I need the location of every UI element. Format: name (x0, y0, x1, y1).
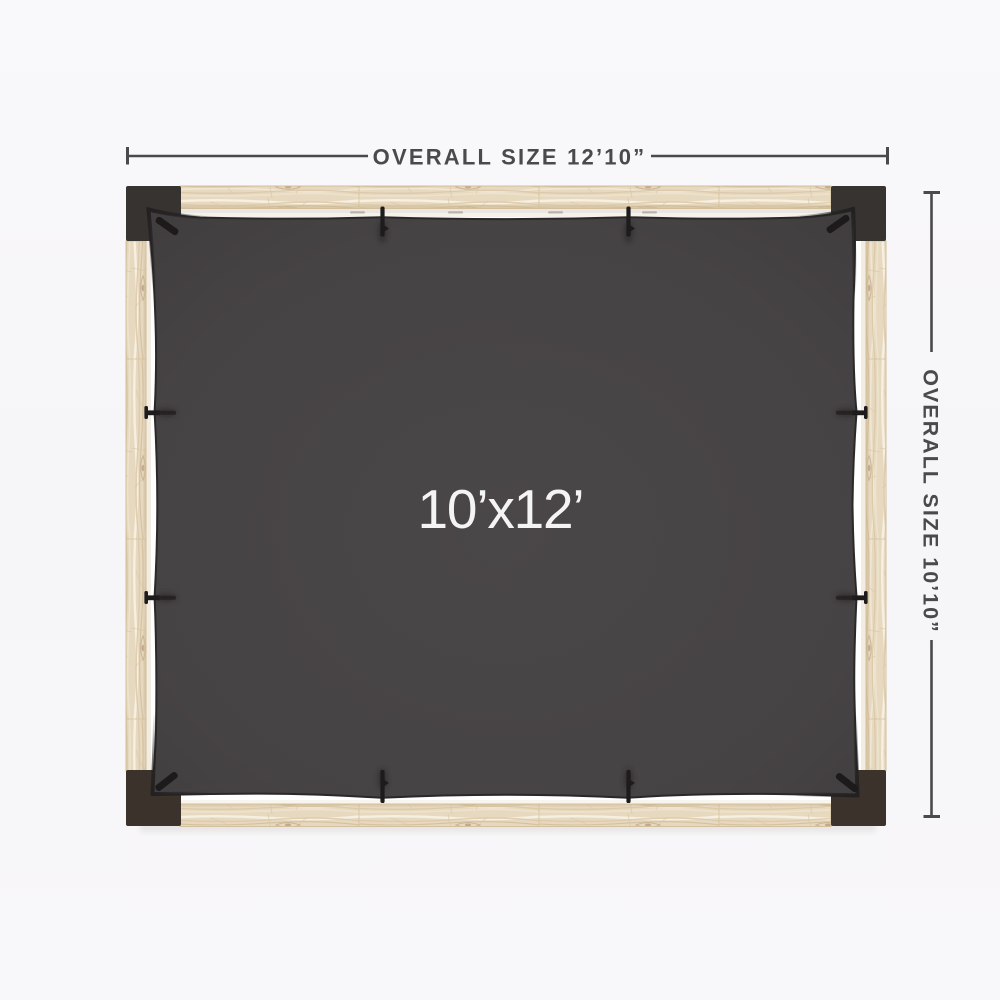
svg-text:OVERALL SIZE 10’10”: OVERALL SIZE 10’10” (919, 369, 943, 634)
svg-text:OVERALL SIZE 12’10”: OVERALL SIZE 12’10” (373, 145, 647, 170)
svg-text:10’x12’: 10’x12’ (418, 478, 584, 540)
